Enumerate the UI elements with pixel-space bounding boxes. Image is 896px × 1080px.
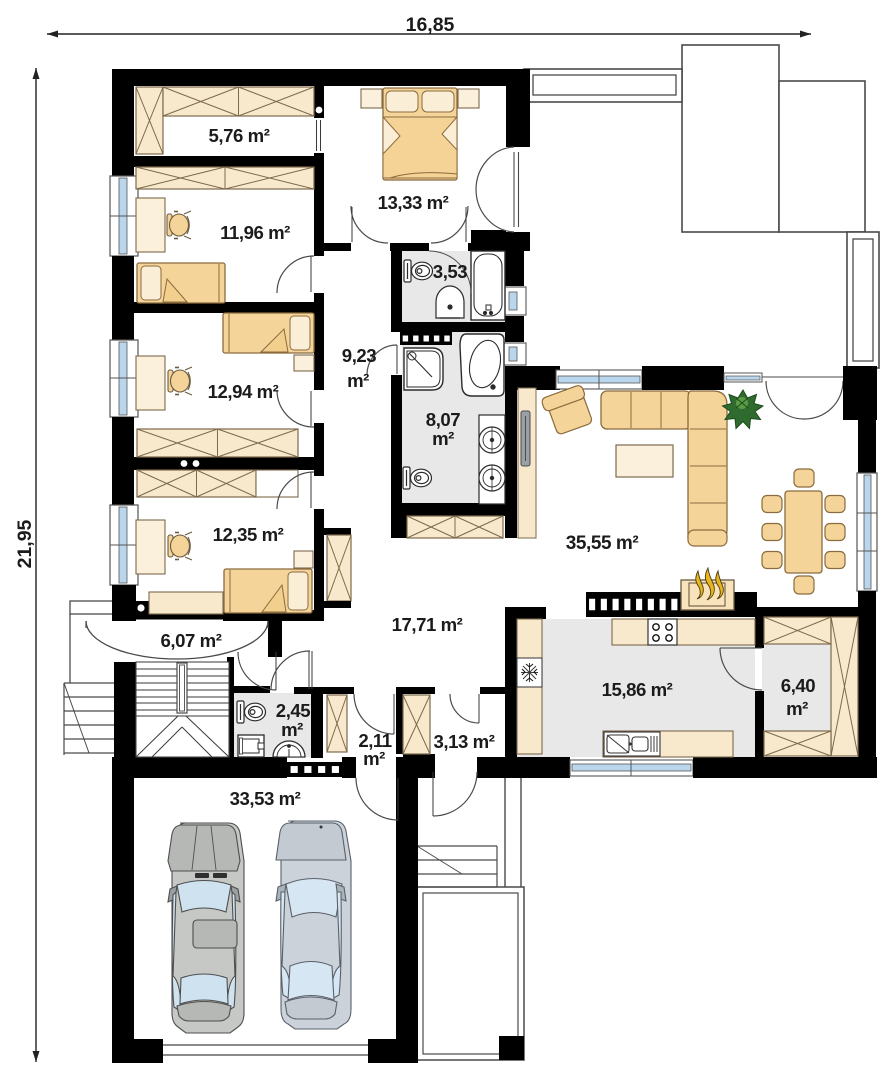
svg-text:35,55 m²: 35,55 m²: [566, 533, 639, 554]
svg-text:2,45: 2,45: [276, 700, 310, 721]
svg-text:5,76 m²: 5,76 m²: [209, 125, 270, 146]
svg-text:m²: m²: [363, 748, 385, 769]
svg-text:11,96 m²: 11,96 m²: [220, 222, 290, 243]
svg-text:16,85: 16,85: [406, 14, 455, 36]
svg-text:3,13 m²: 3,13 m²: [434, 731, 495, 752]
svg-text:3,53: 3,53: [433, 261, 467, 282]
svg-text:9,23: 9,23: [342, 345, 376, 366]
svg-text:33,53 m²: 33,53 m²: [230, 788, 301, 809]
svg-text:8,07: 8,07: [426, 409, 460, 430]
svg-text:17,71 m²: 17,71 m²: [392, 614, 463, 635]
svg-text:12,94 m²: 12,94 m²: [208, 381, 279, 402]
svg-text:12,35 m²: 12,35 m²: [213, 524, 284, 545]
svg-text:6,40: 6,40: [781, 675, 815, 696]
svg-text:15,86 m²: 15,86 m²: [602, 679, 673, 700]
svg-text:6,07 m²: 6,07 m²: [161, 630, 222, 651]
svg-text:21,95: 21,95: [14, 519, 36, 568]
svg-text:13,33 m²: 13,33 m²: [378, 192, 449, 213]
svg-text:m²: m²: [281, 719, 303, 740]
svg-text:m²: m²: [347, 370, 369, 391]
svg-text:m²: m²: [786, 698, 808, 719]
svg-text:m²: m²: [432, 428, 454, 449]
